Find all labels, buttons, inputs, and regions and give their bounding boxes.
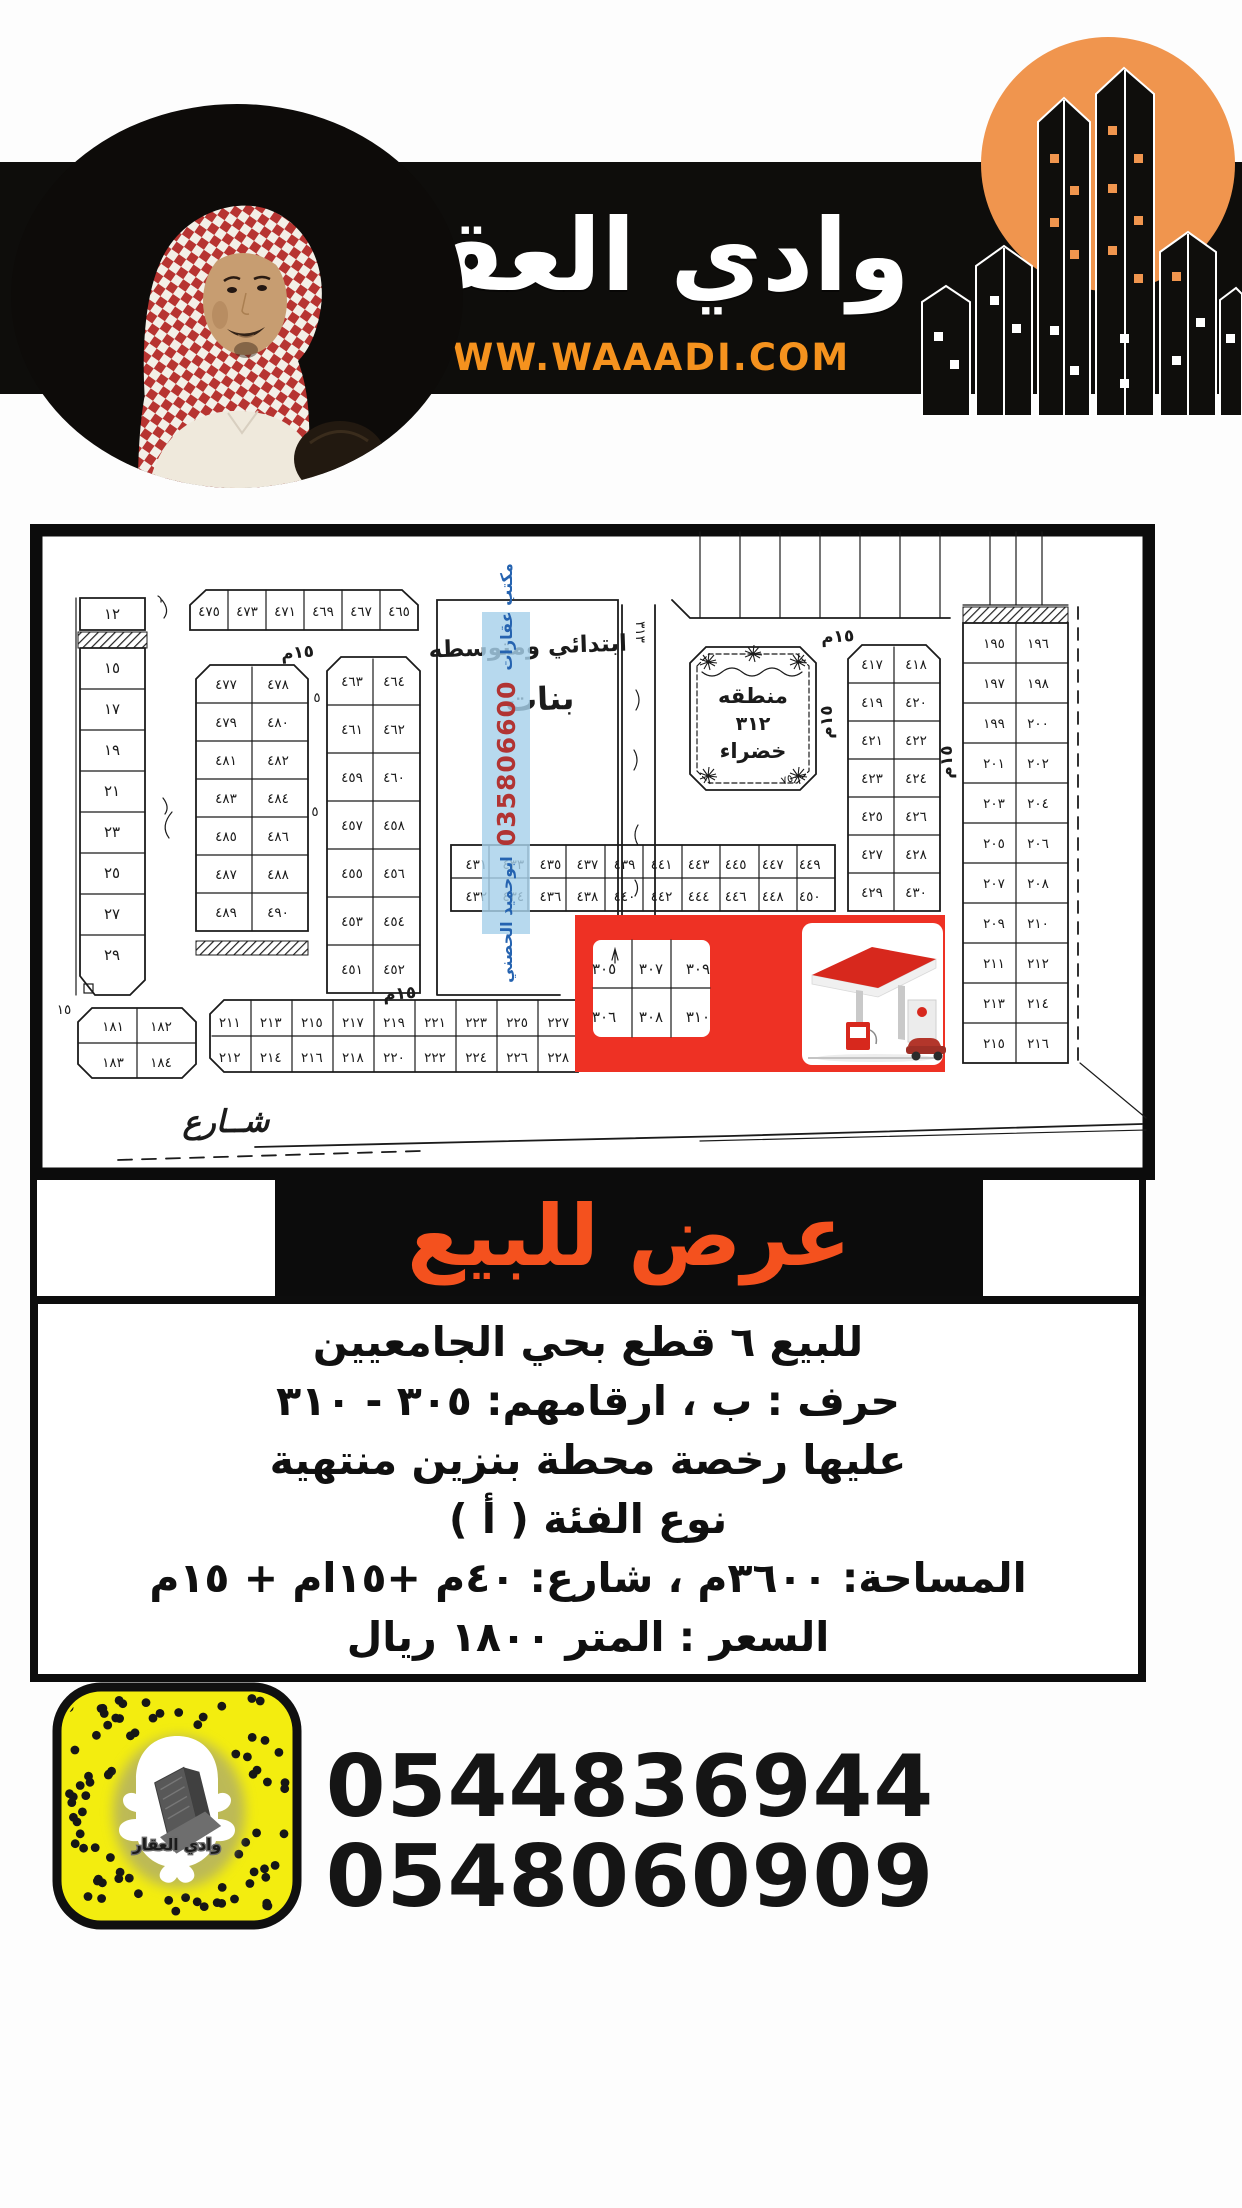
green-area-label: منطقه xyxy=(718,684,788,708)
plot-numbers: ٤٦٥ xyxy=(388,604,410,620)
gas-station-illustration xyxy=(802,923,946,1065)
plot-numbers: ٤٦٠ ٤٥٩ xyxy=(341,770,405,786)
snapcode: وادي العقار xyxy=(52,1682,302,1930)
plot-numbers: ٢١٠ ٢٠٩ xyxy=(983,916,1049,932)
plot-map-figure: ١٢ ١٥ ١٧ ١٩ ٢١ ٢٣ ٢٥ ٢٧ ٢٩ ٤٧٥ ٤٧٣ ٤٧١ ٤… xyxy=(30,524,1155,1180)
plot-numbers: ٤٧٥ xyxy=(198,604,220,620)
plot-numbers: ٤٧٣ xyxy=(236,604,258,620)
watermark-phone: 035806600 xyxy=(492,681,521,847)
detail-line: المساحة: ٣٦٠٠م ، شارع: ٤٠م +١٥ام + ١٥م xyxy=(38,1549,1138,1608)
plot-numbers: ١٩٦ ١٩٥ xyxy=(983,636,1049,652)
watermark-name: ابوحميد الحصني xyxy=(497,856,516,983)
plot-numbers: ٢٩ xyxy=(104,946,120,964)
plot-numbers: ٢١٢ ٢١١ xyxy=(983,956,1049,972)
plot-numbers: ٤٩٠ ٤٨٩ xyxy=(215,905,289,921)
plot-numbers: ٤٢٨ ٤٢٧ xyxy=(861,847,927,863)
plot-numbers: ٢٠٠ ١٩٩ xyxy=(983,716,1049,732)
plot-numbers: ٢١ xyxy=(104,782,120,800)
plot-numbers: ٤٢٤ ٤٢٣ xyxy=(861,771,927,787)
agency-watermark: مكتب عقارات 035806600 ابوحميد الحصني xyxy=(482,612,530,934)
plot-numbers: ٤٨٢ ٤٨١ xyxy=(215,753,289,769)
plot-numbers: ٤٦٧ xyxy=(350,604,372,620)
flyer-canvas: وادي العقار WWW.WAAADI.COM xyxy=(0,0,1242,2208)
plot-numbers: ٢٢٧ ٢٢٥ ٢٢٣ ٢٢١ ٢١٩ ٢١٧ ٢١٥ ٢١٣ ٢١١ xyxy=(219,1015,569,1031)
plot-numbers: ١٥ xyxy=(104,659,120,677)
plot-numbers: ٤٨٦ ٤٨٥ xyxy=(215,829,289,845)
details-card: للبيع ٦ قطع بحي الجامعيين حرف : ب ، ارقا… xyxy=(30,1296,1146,1682)
profile-photo xyxy=(10,103,464,489)
street-label: شــارع xyxy=(182,1103,271,1142)
plot-numbers: ٤٢٢ ٤٢١ xyxy=(861,733,927,749)
sale-banner-row: عرض للبيع xyxy=(30,1180,1146,1296)
plot-numbers: ٢٠٨ ٢٠٧ xyxy=(983,876,1049,892)
phone-number-2: 0548060909 xyxy=(318,1832,942,1922)
plot-numbers: ٢١٤ ٢١٣ xyxy=(983,996,1049,1012)
plot-numbers: ٤٧٨ ٤٧٧ xyxy=(215,677,289,693)
detail-line: حرف : ب ، ارقامهم: ٣٠٥ - ٣١٠ xyxy=(38,1372,1138,1431)
plot-numbers: ٤٦٤ ٤٦٣ xyxy=(341,674,405,690)
buildings-logo xyxy=(912,34,1242,422)
detail-line: السعر : المتر ١٨٠٠ ريال xyxy=(38,1608,1138,1667)
street-width-label: ١٥م xyxy=(382,983,417,1006)
plot-numbers: ٤٥٢ ٤٥١ xyxy=(341,962,405,978)
green-area-label: خضراء xyxy=(720,739,787,763)
plot-numbers: ٢٢٨ ٢٢٦ ٢٢٤ ٢٢٢ ٢٢٠ ٢١٨ ٢١٦ ٢١٤ ٢١٢ xyxy=(219,1050,569,1066)
street-width-label: ١٥م xyxy=(820,626,855,648)
plot-numbers: ٣١٠ ٣٠٨ ٣٠٦ xyxy=(592,1008,710,1026)
plot-numbers: ٢٠٢ ٢٠١ xyxy=(983,756,1049,772)
plot-numbers: ١٩٨ ١٩٧ xyxy=(983,676,1049,692)
plot-numbers: ٢٠٦ ٢٠٥ xyxy=(983,836,1049,852)
plot-numbers: ٢٣ xyxy=(104,823,120,841)
plot-numbers: ٤٥٨ ٤٥٧ xyxy=(341,818,405,834)
plot-numbers: ٤٣٠ ٤٢٩ xyxy=(861,885,927,901)
plot-numbers: ٤٥٤ ٤٥٣ xyxy=(341,914,405,930)
plot-numbers: ٣٠٩ ٣٠٧ ٣٠٥ xyxy=(592,960,710,978)
phone-numbers: 0544836944 0548060909 xyxy=(318,1742,942,1922)
plot-numbers: ١٢ xyxy=(104,605,120,623)
plot-numbers: ٤٦٩ xyxy=(312,604,334,620)
street-width-label: ١٥م xyxy=(937,745,957,778)
highlight-box: ٣٠٩ ٣٠٧ ٣٠٥ ٣١٠ ٣٠٨ ٣٠٦ xyxy=(575,915,946,1072)
plot-numbers: ٢٧ xyxy=(104,905,120,923)
plot-numbers: ٤٦٢ ٤٦١ xyxy=(341,722,405,738)
street-width-label: ٥ xyxy=(311,804,318,820)
sale-banner-text: عرض للبيع xyxy=(275,1180,983,1296)
plot-numbers: ١٩ xyxy=(104,741,120,759)
plot-numbers: ١٨٤ ١٨٣ xyxy=(102,1055,172,1071)
plot-numbers: ٤٧١ xyxy=(274,604,296,620)
plot-numbers: ١٨٢ ١٨١ xyxy=(102,1019,172,1035)
plot-numbers: ٤١٨ ٤١٧ xyxy=(861,657,927,673)
sale-banner: عرض للبيع xyxy=(275,1180,983,1296)
plot-numbers: ٤٨٤ ٤٨٣ xyxy=(215,791,289,807)
street-width-label: ١٥م xyxy=(817,705,837,738)
plot-numbers: ٤٨٠ ٤٧٩ xyxy=(215,715,289,731)
plot-numbers: ٤٥٦ ٤٥٥ xyxy=(341,866,405,882)
plot-numbers: ٤٢٠ ٤١٩ xyxy=(861,695,927,711)
street-width-label: ١٥ xyxy=(57,1002,72,1018)
plot-numbers: ٤٢٦ ٤٢٥ xyxy=(861,809,927,825)
highlight-plots: ٣٠٩ ٣٠٧ ٣٠٥ ٣١٠ ٣٠٨ ٣٠٦ xyxy=(592,940,710,1037)
detail-line: للبيع ٦ قطع بحي الجامعيين xyxy=(38,1313,1138,1372)
plot-numbers: ١٧ xyxy=(104,700,120,718)
plot-numbers: ٢١٦ ٢١٥ xyxy=(983,1036,1049,1052)
detail-line: نوع الفئة ( أ ) xyxy=(38,1490,1138,1549)
plot-numbers: ٢٥ xyxy=(104,864,120,882)
plot-numbers: ٢٠٤ ٢٠٣ xyxy=(983,796,1049,812)
street-width-label: ١٥م xyxy=(280,641,315,664)
map-frame xyxy=(36,530,1149,1174)
watermark-office: مكتب عقارات xyxy=(497,563,516,670)
plot-numbers: ٤٨٨ ٤٨٧ xyxy=(215,867,289,883)
green-area-label: ٣١٢ xyxy=(736,713,771,735)
street-width-label: ٥ xyxy=(313,690,320,706)
detail-line: عليها رخصة محطة بنزين منتهية xyxy=(38,1431,1138,1490)
phone-number-1: 0544836944 xyxy=(318,1742,942,1832)
plot-numbers: ٣١٣ xyxy=(632,621,648,643)
snapcode-label: وادي العقار xyxy=(132,1836,221,1855)
